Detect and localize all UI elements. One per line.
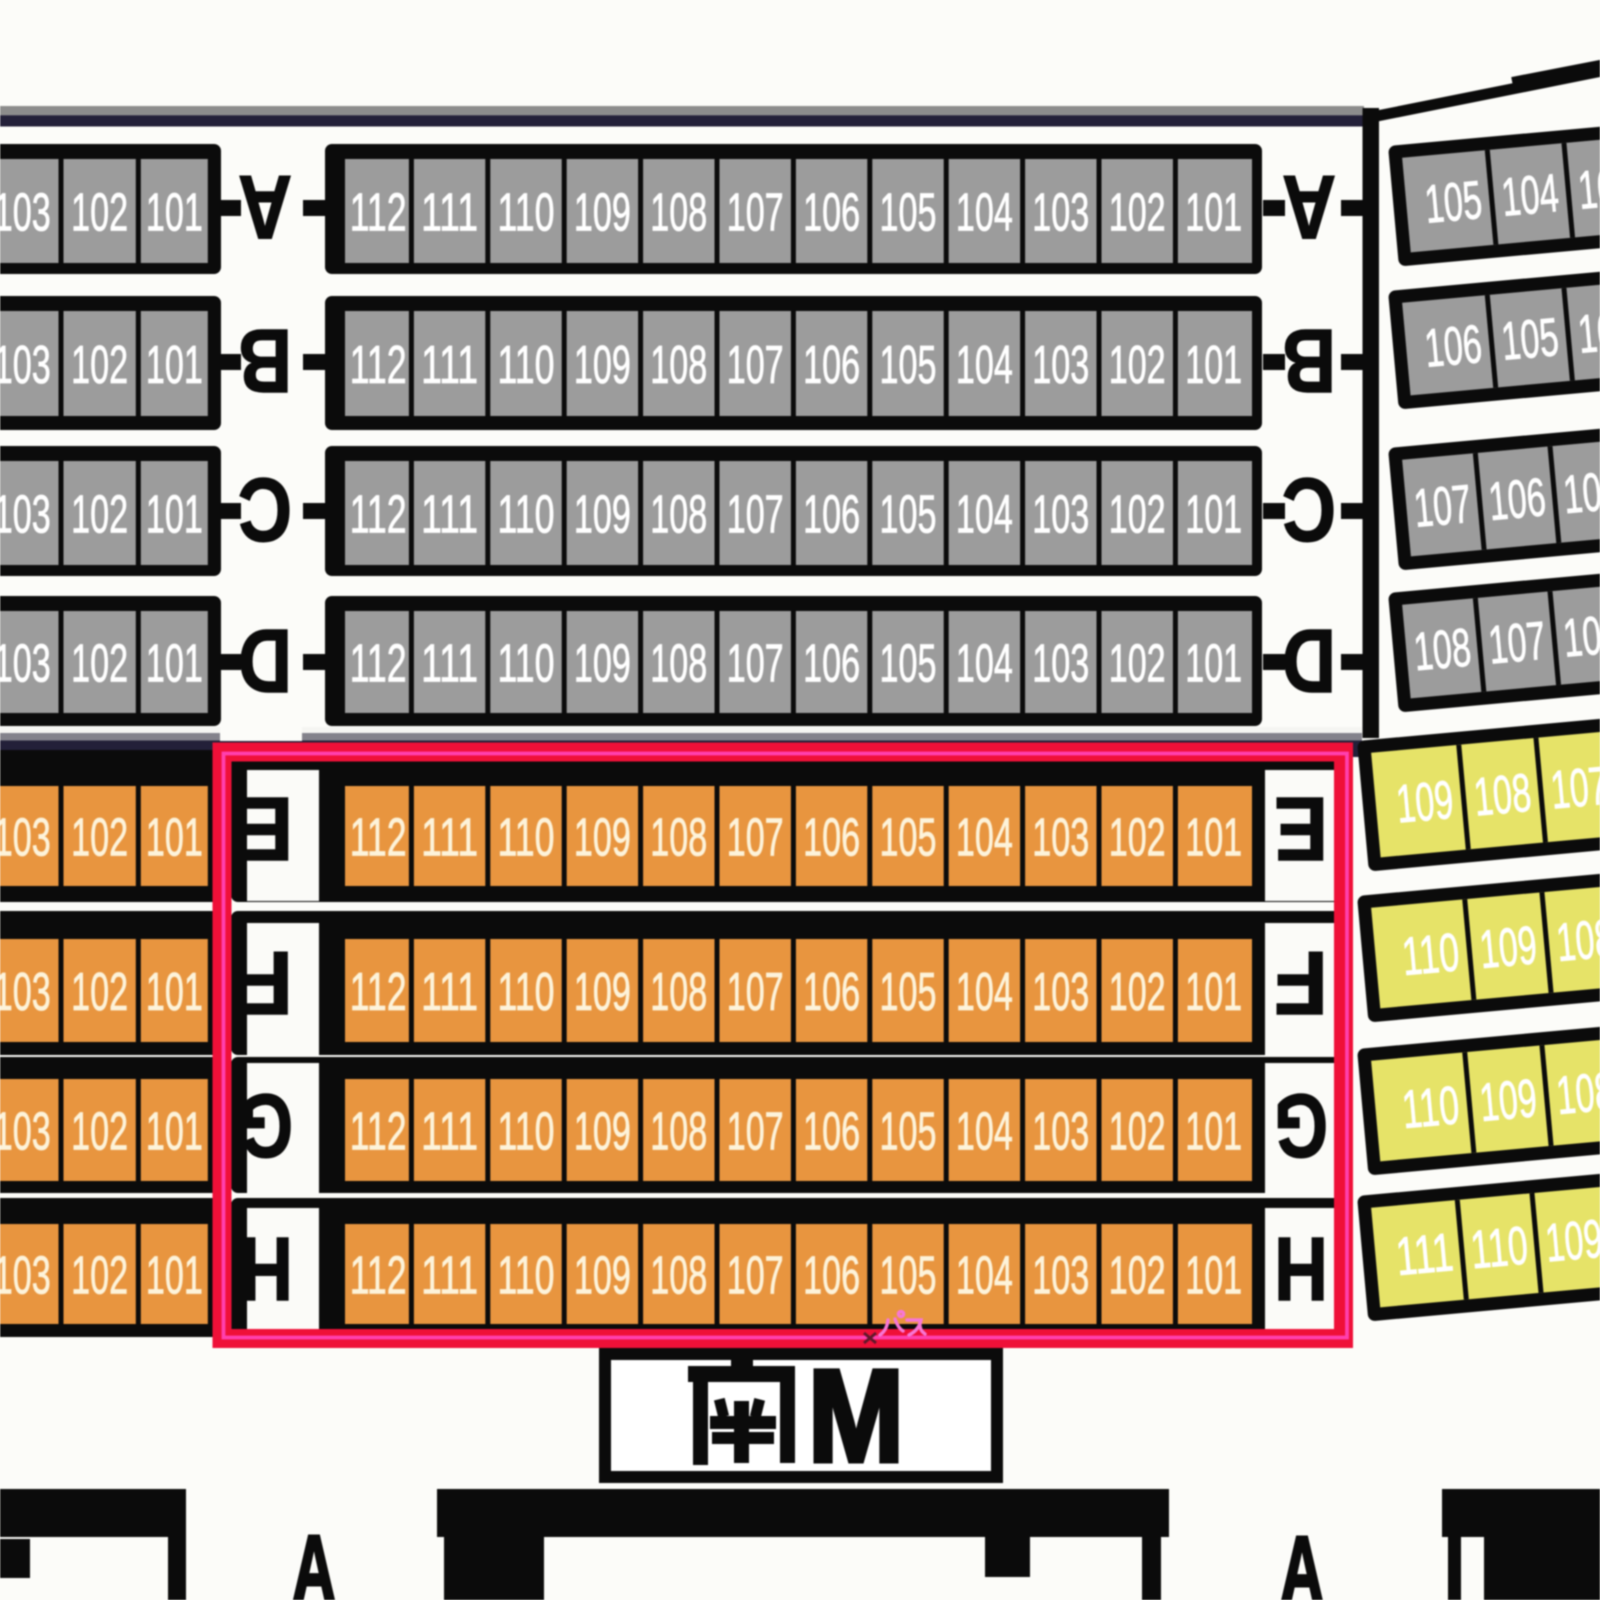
- svg-text:106: 106: [803, 1246, 860, 1306]
- svg-text:107: 107: [727, 808, 784, 868]
- svg-text:101: 101: [146, 808, 203, 868]
- svg-text:A: A: [238, 156, 292, 256]
- svg-text:108: 108: [650, 808, 707, 868]
- svg-text:112: 112: [350, 1246, 407, 1306]
- svg-text:110: 110: [1400, 1075, 1462, 1140]
- svg-text:106: 106: [803, 335, 860, 395]
- svg-text:B: B: [238, 310, 292, 410]
- svg-text:101: 101: [146, 1246, 203, 1306]
- svg-text:107: 107: [727, 1102, 784, 1162]
- svg-text:109: 109: [1394, 770, 1456, 835]
- svg-text:103: 103: [1032, 335, 1089, 395]
- svg-text:102: 102: [71, 1102, 128, 1162]
- svg-text:F: F: [239, 932, 293, 1032]
- svg-text:108: 108: [1411, 618, 1473, 683]
- svg-text:104: 104: [956, 1246, 1013, 1306]
- svg-text:111: 111: [421, 183, 478, 243]
- svg-text:103: 103: [1032, 1102, 1089, 1162]
- svg-text:102: 102: [1109, 485, 1166, 545]
- svg-text:106: 106: [803, 808, 860, 868]
- svg-text:107: 107: [727, 335, 784, 395]
- svg-text:109: 109: [574, 808, 631, 868]
- svg-text:105: 105: [1422, 170, 1484, 235]
- svg-text:A: A: [1282, 156, 1336, 256]
- svg-text:H: H: [1274, 1218, 1328, 1318]
- svg-text:112: 112: [350, 335, 407, 395]
- svg-text:101: 101: [146, 335, 203, 395]
- svg-text:108: 108: [650, 183, 707, 243]
- svg-text:C: C: [238, 459, 292, 559]
- svg-text:102: 102: [1109, 808, 1166, 868]
- svg-text:105: 105: [880, 335, 937, 395]
- svg-text:106: 106: [803, 1102, 860, 1162]
- svg-text:107: 107: [727, 183, 784, 243]
- svg-text:101: 101: [146, 183, 203, 243]
- svg-text:108: 108: [650, 335, 707, 395]
- svg-text:105: 105: [880, 1102, 937, 1162]
- svg-text:103: 103: [0, 335, 51, 395]
- svg-text:106: 106: [803, 485, 860, 545]
- svg-text:102: 102: [71, 634, 128, 694]
- svg-text:111: 111: [421, 962, 478, 1022]
- svg-text:102: 102: [71, 1246, 128, 1306]
- svg-text:106: 106: [1561, 604, 1600, 669]
- svg-text:105: 105: [880, 634, 937, 694]
- svg-text:G: G: [1274, 1075, 1328, 1175]
- svg-text:107: 107: [727, 634, 784, 694]
- svg-text:102: 102: [71, 335, 128, 395]
- svg-text:109: 109: [574, 962, 631, 1022]
- svg-text:109: 109: [1543, 1209, 1600, 1274]
- svg-text:112: 112: [350, 808, 407, 868]
- svg-text:101: 101: [1185, 183, 1242, 243]
- svg-text:111: 111: [421, 1246, 478, 1306]
- svg-text:101: 101: [1185, 1246, 1242, 1306]
- svg-text:106: 106: [1486, 467, 1548, 532]
- svg-text:105: 105: [1561, 460, 1600, 525]
- svg-text:101: 101: [1185, 1102, 1242, 1162]
- svg-text:109: 109: [574, 634, 631, 694]
- svg-text:103: 103: [0, 1102, 51, 1162]
- svg-text:104: 104: [956, 183, 1013, 243]
- svg-text:E: E: [239, 778, 293, 878]
- svg-text:103: 103: [1032, 1246, 1089, 1306]
- svg-text:109: 109: [574, 1246, 631, 1306]
- svg-text:111: 111: [421, 485, 478, 545]
- svg-text:101: 101: [1185, 962, 1242, 1022]
- svg-text:101: 101: [1185, 634, 1242, 694]
- svg-text:107: 107: [727, 1246, 784, 1306]
- svg-text:111: 111: [1394, 1222, 1456, 1287]
- svg-text:105: 105: [880, 485, 937, 545]
- svg-text:109: 109: [574, 1102, 631, 1162]
- svg-text:108: 108: [650, 485, 707, 545]
- svg-text:108: 108: [650, 634, 707, 694]
- svg-text:105: 105: [880, 808, 937, 868]
- svg-text:106: 106: [803, 183, 860, 243]
- svg-text:101: 101: [146, 1102, 203, 1162]
- svg-text:104: 104: [1576, 300, 1600, 365]
- svg-text:103: 103: [0, 962, 51, 1022]
- svg-text:109: 109: [574, 485, 631, 545]
- svg-text:110: 110: [498, 183, 555, 243]
- svg-text:104: 104: [956, 335, 1013, 395]
- svg-text:105: 105: [880, 962, 937, 1022]
- svg-text:110: 110: [1468, 1216, 1530, 1281]
- svg-text:107: 107: [727, 962, 784, 1022]
- svg-text:102: 102: [71, 962, 128, 1022]
- svg-text:D: D: [238, 610, 292, 710]
- svg-text:104: 104: [956, 485, 1013, 545]
- svg-text:102: 102: [1109, 634, 1166, 694]
- svg-text:112: 112: [350, 485, 407, 545]
- svg-text:106: 106: [803, 634, 860, 694]
- svg-text:110: 110: [498, 335, 555, 395]
- svg-text:111: 111: [421, 808, 478, 868]
- svg-text:103: 103: [1032, 485, 1089, 545]
- svg-text:109: 109: [574, 183, 631, 243]
- svg-text:A: A: [1280, 1517, 1324, 1600]
- svg-text:104: 104: [956, 808, 1013, 868]
- svg-text:103: 103: [1032, 183, 1089, 243]
- svg-text:102: 102: [1109, 962, 1166, 1022]
- svg-text:111: 111: [421, 1102, 478, 1162]
- svg-text:104: 104: [956, 962, 1013, 1022]
- svg-text:108: 108: [1554, 1061, 1600, 1126]
- svg-text:110: 110: [498, 485, 555, 545]
- svg-text:110: 110: [498, 634, 555, 694]
- svg-text:101: 101: [146, 962, 203, 1022]
- svg-text:104: 104: [956, 1102, 1013, 1162]
- svg-text:G: G: [239, 1075, 293, 1175]
- svg-text:112: 112: [350, 634, 407, 694]
- svg-text:102: 102: [1109, 1246, 1166, 1306]
- svg-text:102: 102: [1109, 335, 1166, 395]
- svg-text:103: 103: [1032, 634, 1089, 694]
- svg-text:110: 110: [498, 962, 555, 1022]
- svg-text:101: 101: [1185, 335, 1242, 395]
- svg-text:102: 102: [1109, 1102, 1166, 1162]
- svg-text:105: 105: [880, 1246, 937, 1306]
- svg-text:C: C: [1282, 459, 1336, 559]
- svg-text:E: E: [1274, 778, 1328, 878]
- svg-text:B: B: [1282, 310, 1336, 410]
- svg-text:107: 107: [727, 485, 784, 545]
- svg-text:A: A: [292, 1516, 336, 1600]
- svg-text:107: 107: [1548, 756, 1600, 821]
- svg-text:108: 108: [650, 1246, 707, 1306]
- svg-text:111: 111: [421, 335, 478, 395]
- svg-text:104: 104: [956, 634, 1013, 694]
- svg-text:103: 103: [0, 183, 51, 243]
- svg-text:110: 110: [498, 808, 555, 868]
- svg-text:109: 109: [1477, 915, 1539, 980]
- svg-text:106: 106: [803, 962, 860, 1022]
- svg-text:102: 102: [71, 485, 128, 545]
- svg-text:102: 102: [1109, 183, 1166, 243]
- svg-text:101: 101: [146, 485, 203, 545]
- svg-text:103: 103: [1576, 156, 1600, 221]
- svg-text:107: 107: [1486, 611, 1548, 676]
- svg-text:112: 112: [350, 183, 407, 243]
- svg-text:110: 110: [498, 1102, 555, 1162]
- svg-text:112: 112: [350, 962, 407, 1022]
- svg-text:103: 103: [0, 1246, 51, 1306]
- svg-text:107: 107: [1411, 474, 1473, 539]
- svg-text:112: 112: [350, 1102, 407, 1162]
- svg-text:D: D: [1282, 610, 1336, 710]
- svg-text:110: 110: [1400, 922, 1462, 987]
- svg-text:103: 103: [0, 634, 51, 694]
- svg-text:103: 103: [1032, 808, 1089, 868]
- svg-text:106: 106: [1422, 314, 1484, 379]
- svg-text:105: 105: [1499, 307, 1561, 372]
- svg-text:M: M: [808, 1342, 904, 1489]
- svg-text:109: 109: [1477, 1068, 1539, 1133]
- svg-text:104: 104: [1499, 163, 1561, 228]
- svg-text:H: H: [239, 1218, 293, 1318]
- svg-text:F: F: [1274, 932, 1328, 1032]
- svg-text:110: 110: [498, 1246, 555, 1306]
- svg-text:108: 108: [650, 1102, 707, 1162]
- svg-text:103: 103: [1032, 962, 1089, 1022]
- svg-text:108: 108: [650, 962, 707, 1022]
- svg-text:108: 108: [1471, 763, 1533, 828]
- svg-text:108: 108: [1554, 908, 1600, 973]
- svg-text:101: 101: [1185, 808, 1242, 868]
- svg-text:102: 102: [71, 183, 128, 243]
- svg-text:111: 111: [421, 634, 478, 694]
- svg-text:101: 101: [1185, 485, 1242, 545]
- svg-text:103: 103: [0, 808, 51, 868]
- svg-text:103: 103: [0, 485, 51, 545]
- svg-text:109: 109: [574, 335, 631, 395]
- svg-text:101: 101: [146, 634, 203, 694]
- svg-text:105: 105: [880, 183, 937, 243]
- svg-text:102: 102: [71, 808, 128, 868]
